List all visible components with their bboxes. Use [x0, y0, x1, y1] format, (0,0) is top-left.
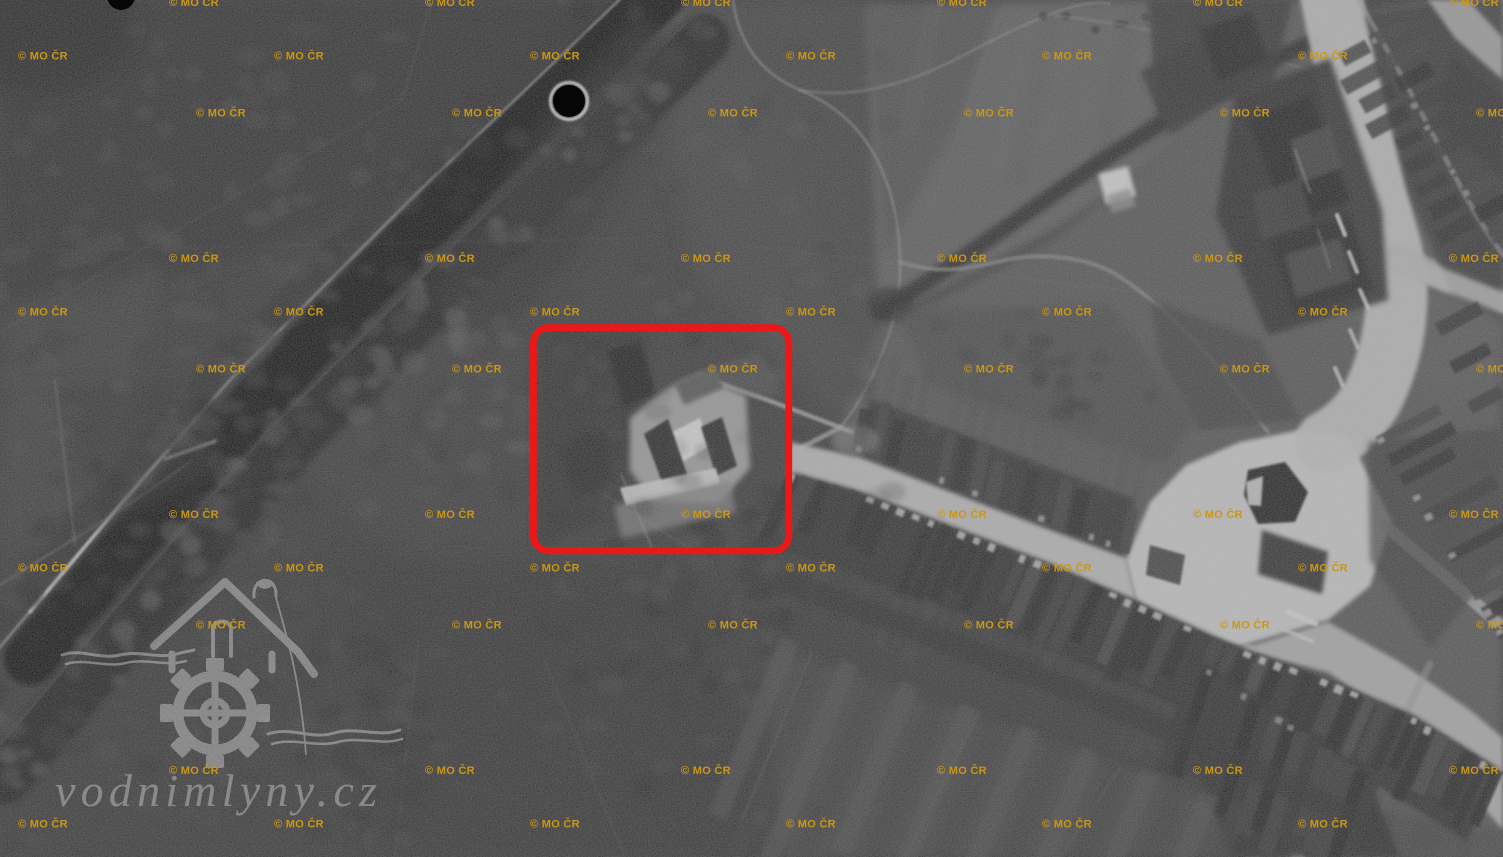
svg-text:© MO ČR: © MO ČR — [937, 0, 987, 9]
svg-text:© MO ČR: © MO ČR — [681, 764, 731, 777]
svg-text:© MO ČR: © MO ČR — [1298, 306, 1348, 319]
svg-text:© MO ČR: © MO ČR — [18, 306, 68, 319]
svg-text:© MO ČR: © MO ČR — [452, 107, 502, 120]
svg-text:© MO ČR: © MO ČR — [937, 252, 987, 265]
svg-text:© MO ČR: © MO ČR — [18, 50, 68, 63]
svg-text:© MO ČR: © MO ČR — [18, 562, 68, 575]
svg-text:© MO ČR: © MO ČR — [964, 363, 1014, 376]
svg-text:© MO ČR: © MO ČR — [1220, 107, 1270, 120]
svg-text:© MO ČR: © MO ČR — [964, 619, 1014, 632]
svg-text:© MO ČR: © MO ČR — [196, 363, 246, 376]
svg-text:© MO ČR: © MO ČR — [1193, 0, 1243, 9]
svg-text:© MO ČR: © MO ČR — [1193, 508, 1243, 521]
svg-text:© MO ČR: © MO ČR — [708, 619, 758, 632]
svg-text:© MO ČR: © MO ČR — [937, 764, 987, 777]
svg-text:© MO ČR: © MO ČR — [274, 306, 324, 319]
svg-text:© MO ČR: © MO ČR — [425, 252, 475, 265]
svg-text:© MO ČR: © MO ČR — [274, 50, 324, 63]
svg-text:© MO ČR: © MO ČR — [786, 818, 836, 831]
svg-text:© MO ČR: © MO ČR — [1193, 764, 1243, 777]
svg-text:© MO ČR: © MO ČR — [452, 363, 502, 376]
svg-text:© MO ČR: © MO ČR — [196, 619, 246, 632]
svg-text:© MO ČR: © MO ČR — [1449, 252, 1499, 265]
svg-text:© MO ČR: © MO ČR — [1220, 619, 1270, 632]
svg-text:© MO ČR: © MO ČR — [1449, 0, 1499, 9]
svg-text:© MO ČR: © MO ČR — [425, 0, 475, 9]
svg-text:© MO ČR: © MO ČR — [274, 562, 324, 575]
svg-text:© MO ČR: © MO ČR — [1449, 508, 1499, 521]
svg-text:© MO ČR: © MO ČR — [1042, 50, 1092, 63]
svg-text:© MO ČR: © MO ČR — [1193, 252, 1243, 265]
svg-text:© MO ČR: © MO ČR — [708, 107, 758, 120]
svg-text:© MO ČR: © MO ČR — [1042, 306, 1092, 319]
svg-text:© MO ČR: © MO ČR — [1449, 764, 1499, 777]
svg-text:© MO ČR: © MO ČR — [196, 107, 246, 120]
svg-text:© MO ČR: © MO ČR — [937, 508, 987, 521]
svg-text:© MO ČR: © MO ČR — [425, 508, 475, 521]
svg-text:© MO ČR: © MO ČR — [18, 818, 68, 831]
svg-text:© MO ČR: © MO ČR — [274, 818, 324, 831]
svg-text:© MO ČR: © MO ČR — [530, 50, 580, 63]
svg-text:© MO ČR: © MO ČR — [786, 562, 836, 575]
svg-text:© MO ČR: © MO ČR — [530, 818, 580, 831]
svg-text:© MO ČR: © MO ČR — [452, 619, 502, 632]
svg-text:© MO ČR: © MO ČR — [1042, 562, 1092, 575]
svg-text:© MO ČR: © MO ČR — [1476, 107, 1503, 120]
svg-text:© MO ČR: © MO ČR — [1476, 619, 1503, 632]
svg-text:© MO ČR: © MO ČR — [169, 0, 219, 9]
svg-text:© MO ČR: © MO ČR — [1298, 50, 1348, 63]
svg-text:© MO ČR: © MO ČR — [681, 252, 731, 265]
svg-text:© MO ČR: © MO ČR — [964, 107, 1014, 120]
svg-text:© MO ČR: © MO ČR — [1298, 562, 1348, 575]
svg-text:© MO ČR: © MO ČR — [169, 508, 219, 521]
svg-text:© MO ČR: © MO ČR — [1042, 818, 1092, 831]
svg-text:© MO ČR: © MO ČR — [1298, 818, 1348, 831]
svg-text:© MO ČR: © MO ČR — [681, 508, 731, 521]
svg-text:© MO ČR: © MO ČR — [530, 306, 580, 319]
svg-text:© MO ČR: © MO ČR — [1476, 363, 1503, 376]
svg-text:© MO ČR: © MO ČR — [425, 764, 475, 777]
svg-text:© MO ČR: © MO ČR — [786, 50, 836, 63]
svg-text:© MO ČR: © MO ČR — [169, 252, 219, 265]
svg-text:© MO ČR: © MO ČR — [169, 764, 219, 777]
svg-text:© MO ČR: © MO ČR — [530, 562, 580, 575]
svg-text:© MO ČR: © MO ČR — [1220, 363, 1270, 376]
svg-text:© MO ČR: © MO ČR — [681, 0, 731, 9]
svg-text:© MO ČR: © MO ČR — [786, 306, 836, 319]
svg-text:© MO ČR: © MO ČR — [708, 363, 758, 376]
